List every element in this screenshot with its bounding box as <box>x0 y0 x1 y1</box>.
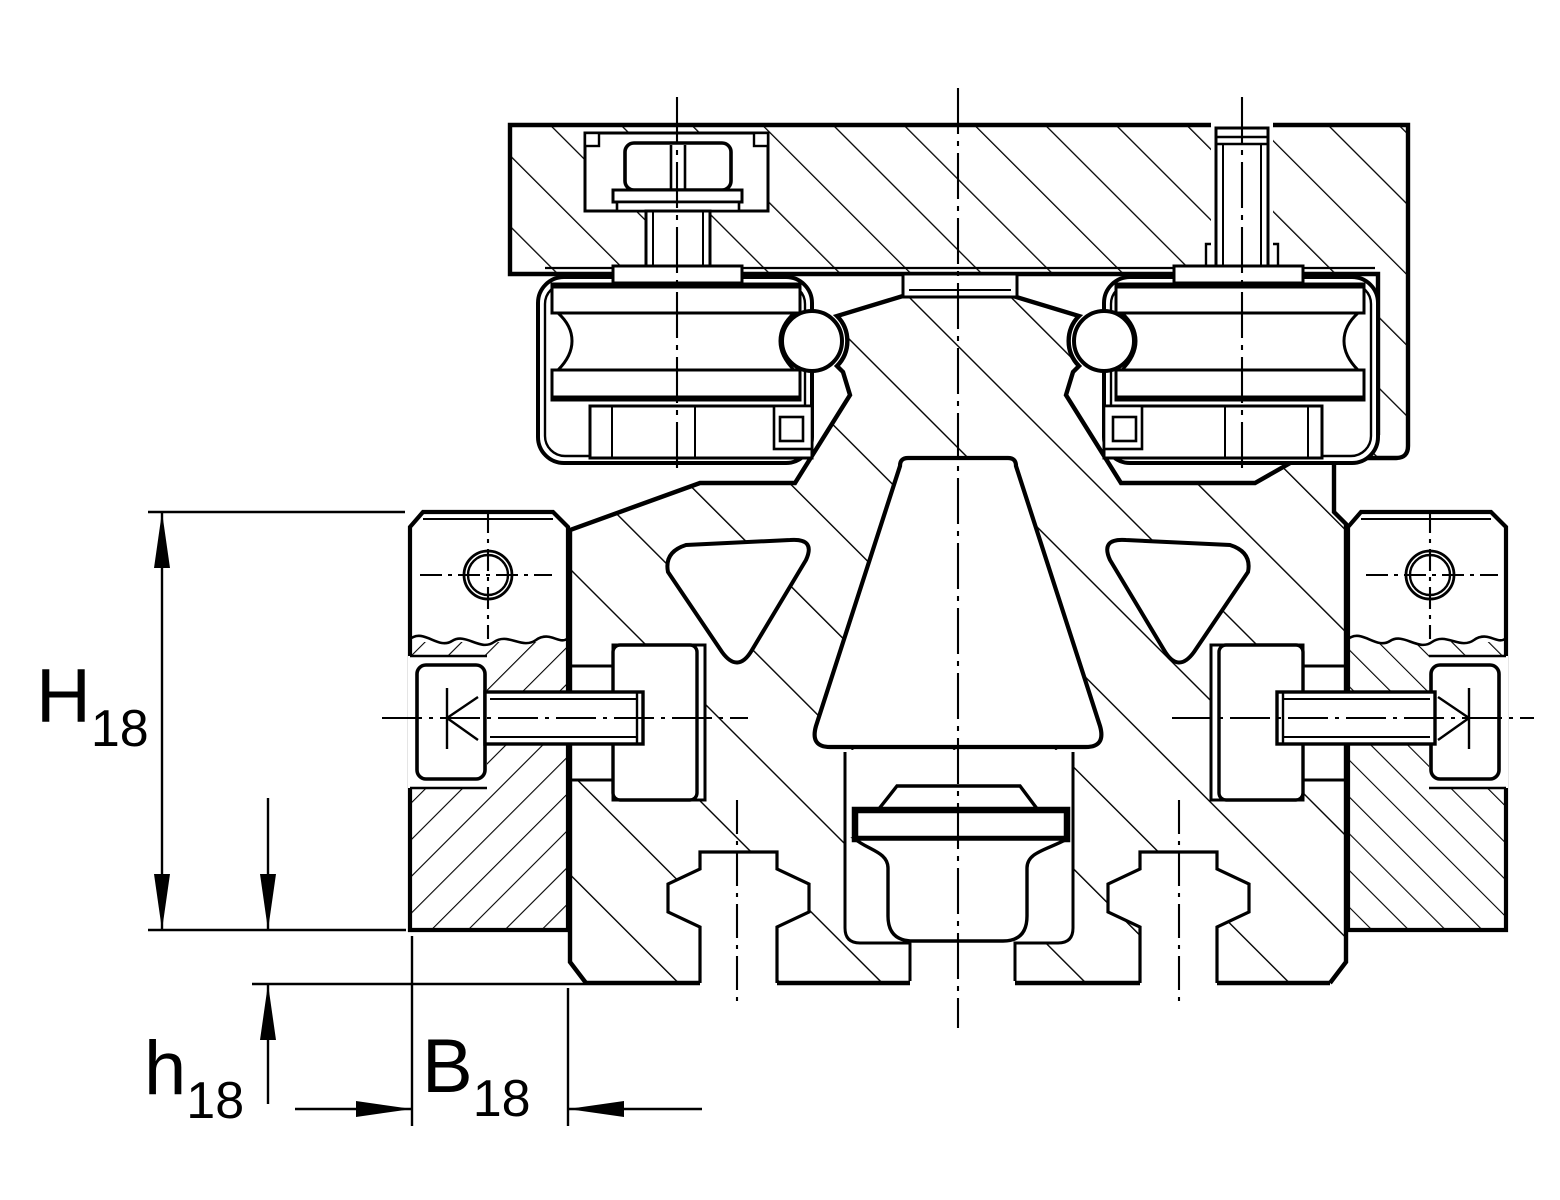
label-B18: B18 <box>422 1024 531 1128</box>
dim-H-arrow-down <box>154 874 170 930</box>
left-ball <box>782 311 842 371</box>
right-track-roller <box>1074 266 1378 463</box>
left-roller-notch-inner <box>780 417 803 441</box>
pocket-lip-right <box>754 133 768 146</box>
section-drawing: H18 h18 B18 <box>0 0 1560 1200</box>
pocket-lip-left <box>585 133 599 146</box>
center-slot-opening <box>910 940 1015 983</box>
right-roller-notch-inner <box>1113 417 1136 441</box>
dim-B-arrow-left <box>568 1101 624 1117</box>
left-track-roller <box>538 266 842 463</box>
dim-H-arrow-up <box>154 512 170 568</box>
right-roller-washer <box>1174 266 1303 283</box>
label-H18: H18 <box>36 654 149 758</box>
dim-B-arrow-right <box>356 1101 412 1117</box>
right-roller-mid <box>1122 313 1358 370</box>
dim-h-arrow-down <box>260 874 276 930</box>
shim-plate <box>903 274 1017 297</box>
label-h18: h18 <box>144 1026 244 1130</box>
right-ball <box>1074 311 1134 371</box>
dim-h-arrow-up <box>260 984 276 1040</box>
drawing-canvas: H18 h18 B18 <box>0 0 1560 1200</box>
center-t-nut-flange <box>855 810 1067 839</box>
